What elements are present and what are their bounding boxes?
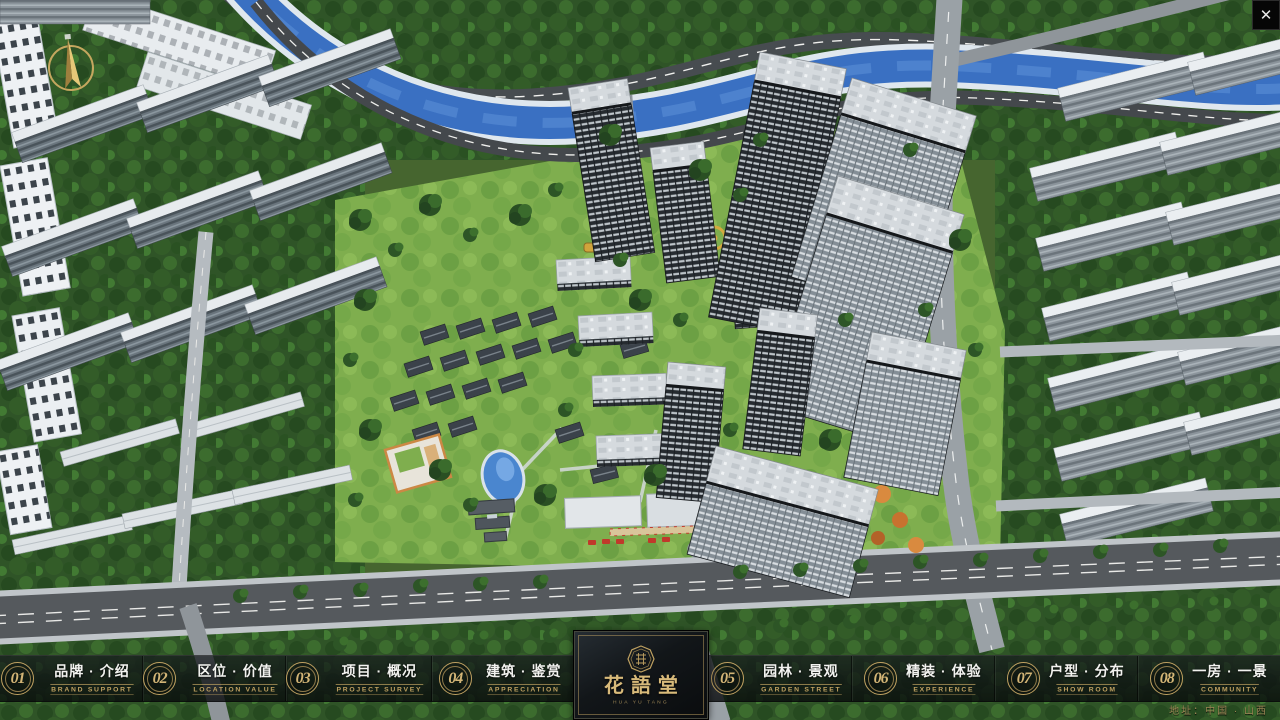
nav-item-sublabel: APPRECIATION bbox=[487, 684, 560, 695]
nav-item-number: 02 bbox=[153, 670, 167, 688]
nav-item-labels: 区位 · 价值 LOCATION VALUE bbox=[185, 661, 285, 696]
nav-item-labels: 精装 · 体验 EXPERIENCE bbox=[906, 661, 981, 696]
nav-item-label: 园林 · 景观 bbox=[763, 661, 838, 681]
nav-item-number-badge: 08 bbox=[1150, 662, 1183, 695]
nav-item-label: 区位 · 价值 bbox=[197, 661, 272, 681]
nav-item-labels: 园林 · 景观 GARDEN STREET bbox=[753, 661, 849, 696]
nav-item-number: 04 bbox=[448, 670, 462, 688]
nav-item-location[interactable]: 02 区位 · 价值 LOCATION VALUE bbox=[142, 656, 285, 701]
nav-item-label: 品牌 · 介绍 bbox=[54, 661, 129, 681]
nav-item-number: 01 bbox=[11, 670, 25, 688]
nav-item-labels: 项目 · 概况 PROJECT SURVEY bbox=[328, 661, 431, 696]
compass-north-icon bbox=[40, 34, 102, 100]
nav-item-sublabel: LOCATION VALUE bbox=[193, 684, 278, 695]
logo-subtitle: HUA YU TANG bbox=[613, 700, 669, 705]
nav-item-interior[interactable]: 06 精装 · 体验 EXPERIENCE bbox=[851, 656, 994, 701]
nav-item-number: 03 bbox=[296, 670, 310, 688]
nav-item-sublabel: COMMUNITY bbox=[1200, 684, 1259, 695]
nav-item-views[interactable]: 08 一房 · 一景 COMMUNITY bbox=[1137, 656, 1280, 701]
nav-item-labels: 建筑 · 鉴赏 APPRECIATION bbox=[481, 661, 567, 696]
nav-item-number: 05 bbox=[720, 670, 734, 688]
nav-item-number-badge: 05 bbox=[711, 662, 744, 695]
nav-item-floorplans[interactable]: 07 户型 · 分布 SHOW ROOM bbox=[994, 656, 1137, 701]
nav-item-number-badge: 03 bbox=[286, 662, 319, 695]
nav-item-architecture[interactable]: 04 建筑 · 鉴赏 APPRECIATION bbox=[431, 656, 574, 701]
nav-item-labels: 一房 · 一景 COMMUNITY bbox=[1192, 661, 1267, 696]
nav-item-brand[interactable]: 01 品牌 · 介绍 BRAND SUPPORT bbox=[0, 656, 142, 701]
close-button[interactable]: ✕ bbox=[1252, 0, 1280, 30]
nav-item-number: 07 bbox=[1017, 670, 1031, 688]
nav-item-landscape[interactable]: 05 园林 · 景观 GARDEN STREET bbox=[708, 656, 851, 701]
logo-title: 花語堂 bbox=[597, 676, 685, 697]
nav-item-sublabel: PROJECT SURVEY bbox=[336, 684, 423, 695]
nav-item-label: 建筑 · 鉴赏 bbox=[486, 661, 561, 681]
project-address: 地址：中国 · 山西 bbox=[1169, 702, 1268, 717]
nav-item-labels: 品牌 · 介绍 BRAND SUPPORT bbox=[43, 661, 141, 696]
nav-item-label: 精装 · 体验 bbox=[906, 661, 981, 681]
nav-item-label: 项目 · 概况 bbox=[342, 661, 417, 681]
close-icon: ✕ bbox=[1260, 8, 1273, 23]
compass[interactable] bbox=[40, 34, 102, 100]
logo-seal-icon bbox=[626, 644, 656, 674]
nav-item-number-badge: 06 bbox=[864, 662, 897, 695]
nav-item-label: 一房 · 一景 bbox=[1192, 661, 1267, 681]
presentation-stage: ✕ 01 品牌 · 介绍 BRAND SUPPORT 02 区位 · 价值 LO… bbox=[0, 0, 1280, 720]
nav-item-project[interactable]: 03 项目 · 概况 PROJECT SURVEY bbox=[285, 656, 431, 701]
site-aerial-view[interactable] bbox=[0, 0, 1280, 720]
nav-item-number: 06 bbox=[874, 670, 888, 688]
nav-item-sublabel: EXPERIENCE bbox=[913, 684, 976, 695]
nav-item-number-badge: 01 bbox=[1, 662, 34, 695]
nav-item-number: 08 bbox=[1160, 670, 1174, 688]
nav-item-sublabel: SHOW ROOM bbox=[1056, 684, 1117, 695]
project-logo[interactable]: 花語堂 HUA YU TANG bbox=[574, 631, 708, 719]
nav-item-label: 户型 · 分布 bbox=[1049, 661, 1124, 681]
nav-item-sublabel: BRAND SUPPORT bbox=[50, 684, 133, 695]
nav-item-number-badge: 07 bbox=[1007, 662, 1040, 695]
nav-item-sublabel: GARDEN STREET bbox=[760, 684, 842, 695]
nav-item-number-badge: 04 bbox=[439, 662, 472, 695]
nav-item-number-badge: 02 bbox=[143, 662, 176, 695]
nav-item-labels: 户型 · 分布 SHOW ROOM bbox=[1049, 661, 1124, 696]
bottom-navbar: 01 品牌 · 介绍 BRAND SUPPORT 02 区位 · 价值 LOCA… bbox=[0, 655, 1280, 702]
